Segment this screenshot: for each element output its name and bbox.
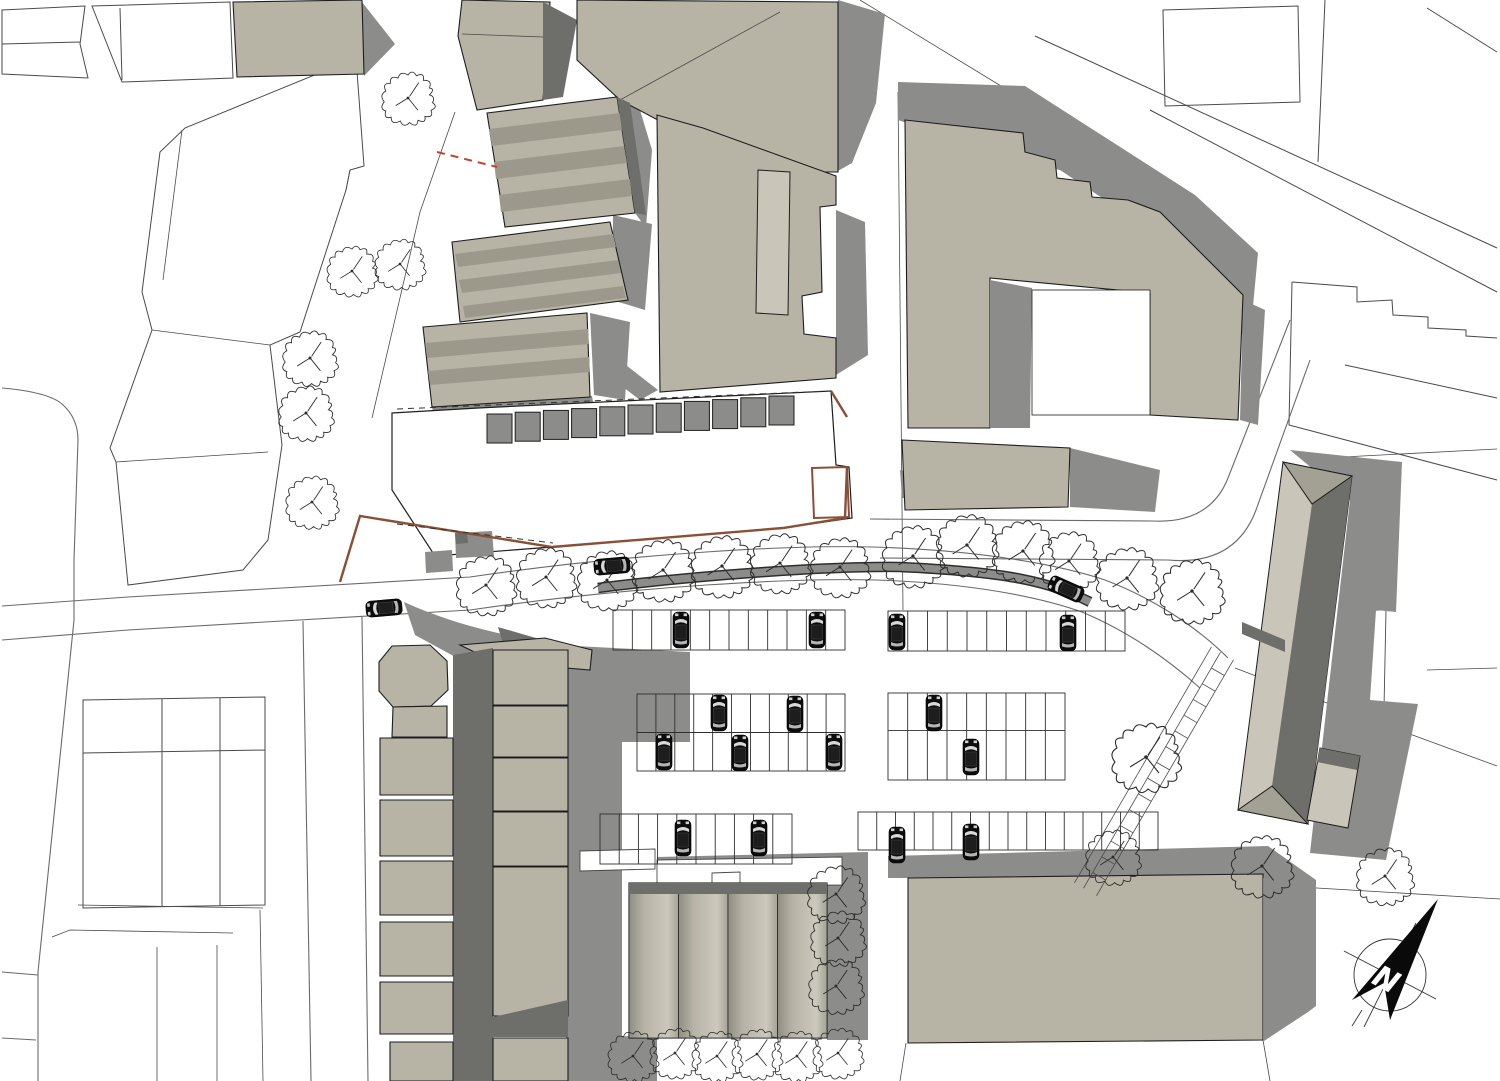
tree-icon — [691, 536, 754, 598]
garage-unit — [741, 398, 766, 427]
plaza-building — [340, 391, 852, 582]
car-icon — [1060, 615, 1076, 651]
tree-icon — [632, 540, 695, 602]
car-icon — [365, 598, 402, 617]
parcel-outline — [1163, 6, 1300, 106]
car-icon — [963, 824, 979, 860]
car-icon — [656, 734, 672, 770]
garage-unit — [769, 396, 794, 425]
car-icon — [675, 820, 691, 856]
octagon-tower — [379, 645, 448, 707]
parking-row — [888, 611, 1125, 651]
car-icon — [751, 820, 767, 856]
tree-icon — [1160, 559, 1225, 624]
building-dark-face — [543, 2, 577, 100]
garage-unit — [628, 405, 653, 434]
car-icon — [889, 614, 905, 650]
tree-icon — [382, 72, 435, 125]
tree-icon — [327, 246, 378, 297]
building — [908, 874, 1263, 1043]
north-arrow-needle — [1352, 899, 1438, 1020]
tree-icon — [1112, 723, 1182, 792]
parcel-outline — [92, 2, 233, 82]
parcel-inner-lines — [116, 130, 350, 462]
striped-building — [487, 97, 646, 227]
tree-icon — [992, 521, 1055, 583]
row-housing-complex — [379, 638, 592, 1081]
garage-unit — [487, 414, 512, 443]
garage-unit — [684, 401, 709, 430]
car-icon — [1046, 574, 1085, 603]
site-plan-canvas: N — [0, 0, 1500, 1081]
car-icon — [963, 739, 979, 775]
tree-icon — [772, 1031, 823, 1081]
car-icon — [809, 612, 825, 648]
striped-building — [452, 222, 628, 322]
parcel-outline — [110, 58, 364, 585]
car-icon — [826, 734, 842, 770]
tree-icon — [882, 526, 945, 588]
garage-unit — [515, 412, 540, 441]
car-icon — [732, 735, 748, 771]
tree-icon — [375, 239, 426, 290]
courtyard — [1032, 290, 1150, 415]
tree-icon — [286, 476, 339, 529]
road-edge — [303, 617, 368, 1081]
red-dashed-line — [437, 152, 497, 167]
tree-icon — [750, 534, 810, 594]
striped-building — [423, 313, 590, 407]
parcel-grid — [83, 697, 265, 908]
tree-icon — [283, 331, 339, 386]
building — [458, 0, 550, 110]
garage-unit — [572, 409, 597, 438]
car-icon — [711, 695, 727, 731]
boundary-square — [812, 467, 849, 518]
parcel-outline — [2, 6, 88, 78]
building — [233, 0, 364, 77]
garage-unit — [656, 403, 681, 432]
tree-icon — [692, 1031, 743, 1081]
tree-icon — [456, 556, 516, 616]
tree-icon — [516, 548, 576, 608]
buildings-layer — [233, 0, 1360, 1081]
parcel-grid-lines — [52, 905, 263, 1081]
north-arrow: N — [1344, 899, 1438, 1027]
car-icon — [593, 556, 630, 575]
car-icon — [673, 612, 689, 648]
garage-unit — [600, 407, 625, 436]
car-icon — [787, 696, 803, 732]
garage-unit — [543, 410, 568, 439]
car-icon — [889, 827, 905, 863]
tree-icon — [279, 386, 335, 441]
road-edge — [2, 388, 78, 1081]
garage-unit — [713, 400, 738, 429]
site-plan-stage: N — [0, 0, 1500, 1081]
car-icon — [926, 695, 942, 731]
building — [902, 440, 1070, 510]
